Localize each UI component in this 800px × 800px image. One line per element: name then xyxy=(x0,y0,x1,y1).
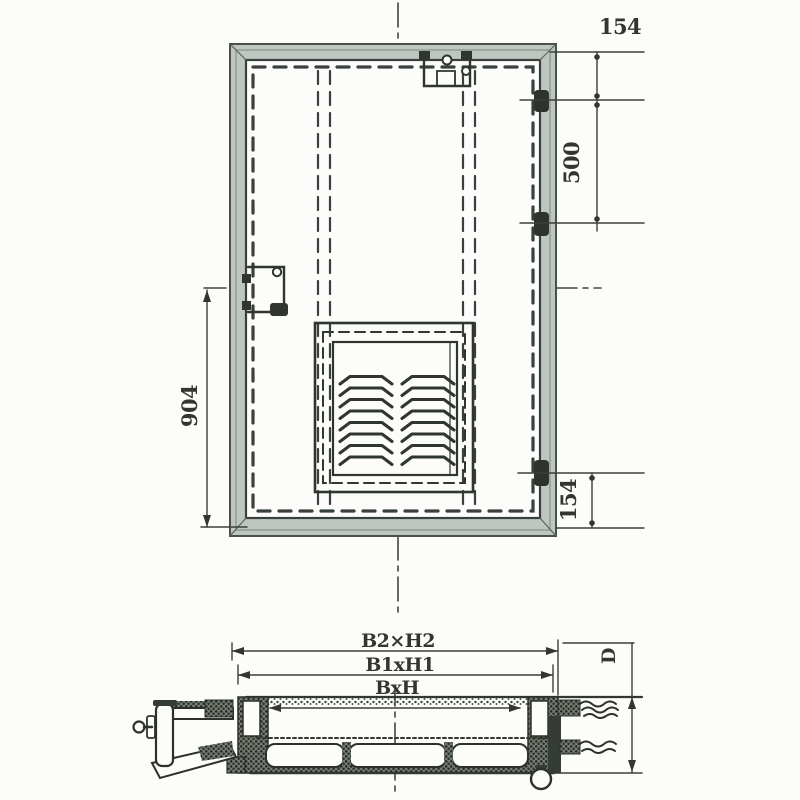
door-technical-drawing: 154 500 154 904 xyxy=(0,0,800,800)
dim-154-top: 154 xyxy=(599,14,641,39)
dim-904: 904 xyxy=(177,385,202,427)
dimension-arrow-dots xyxy=(589,54,600,526)
dim-154-bottom: 154 xyxy=(556,479,581,521)
front-view: 154 500 154 904 xyxy=(177,3,644,618)
label-bh: BxH xyxy=(375,677,419,699)
section-handle xyxy=(134,700,237,778)
technical-drawing-page: 154 500 154 904 xyxy=(0,0,800,800)
label-b1h1: B1xH1 xyxy=(365,654,434,676)
section-view: B2×H2 B1xH1 BxH D xyxy=(134,630,643,797)
dim-500: 500 xyxy=(559,142,584,184)
door-frame xyxy=(230,44,556,536)
label-d: D xyxy=(598,648,620,664)
leaf-stiffeners xyxy=(266,744,528,767)
label-b2h2: B2×H2 xyxy=(361,630,435,652)
